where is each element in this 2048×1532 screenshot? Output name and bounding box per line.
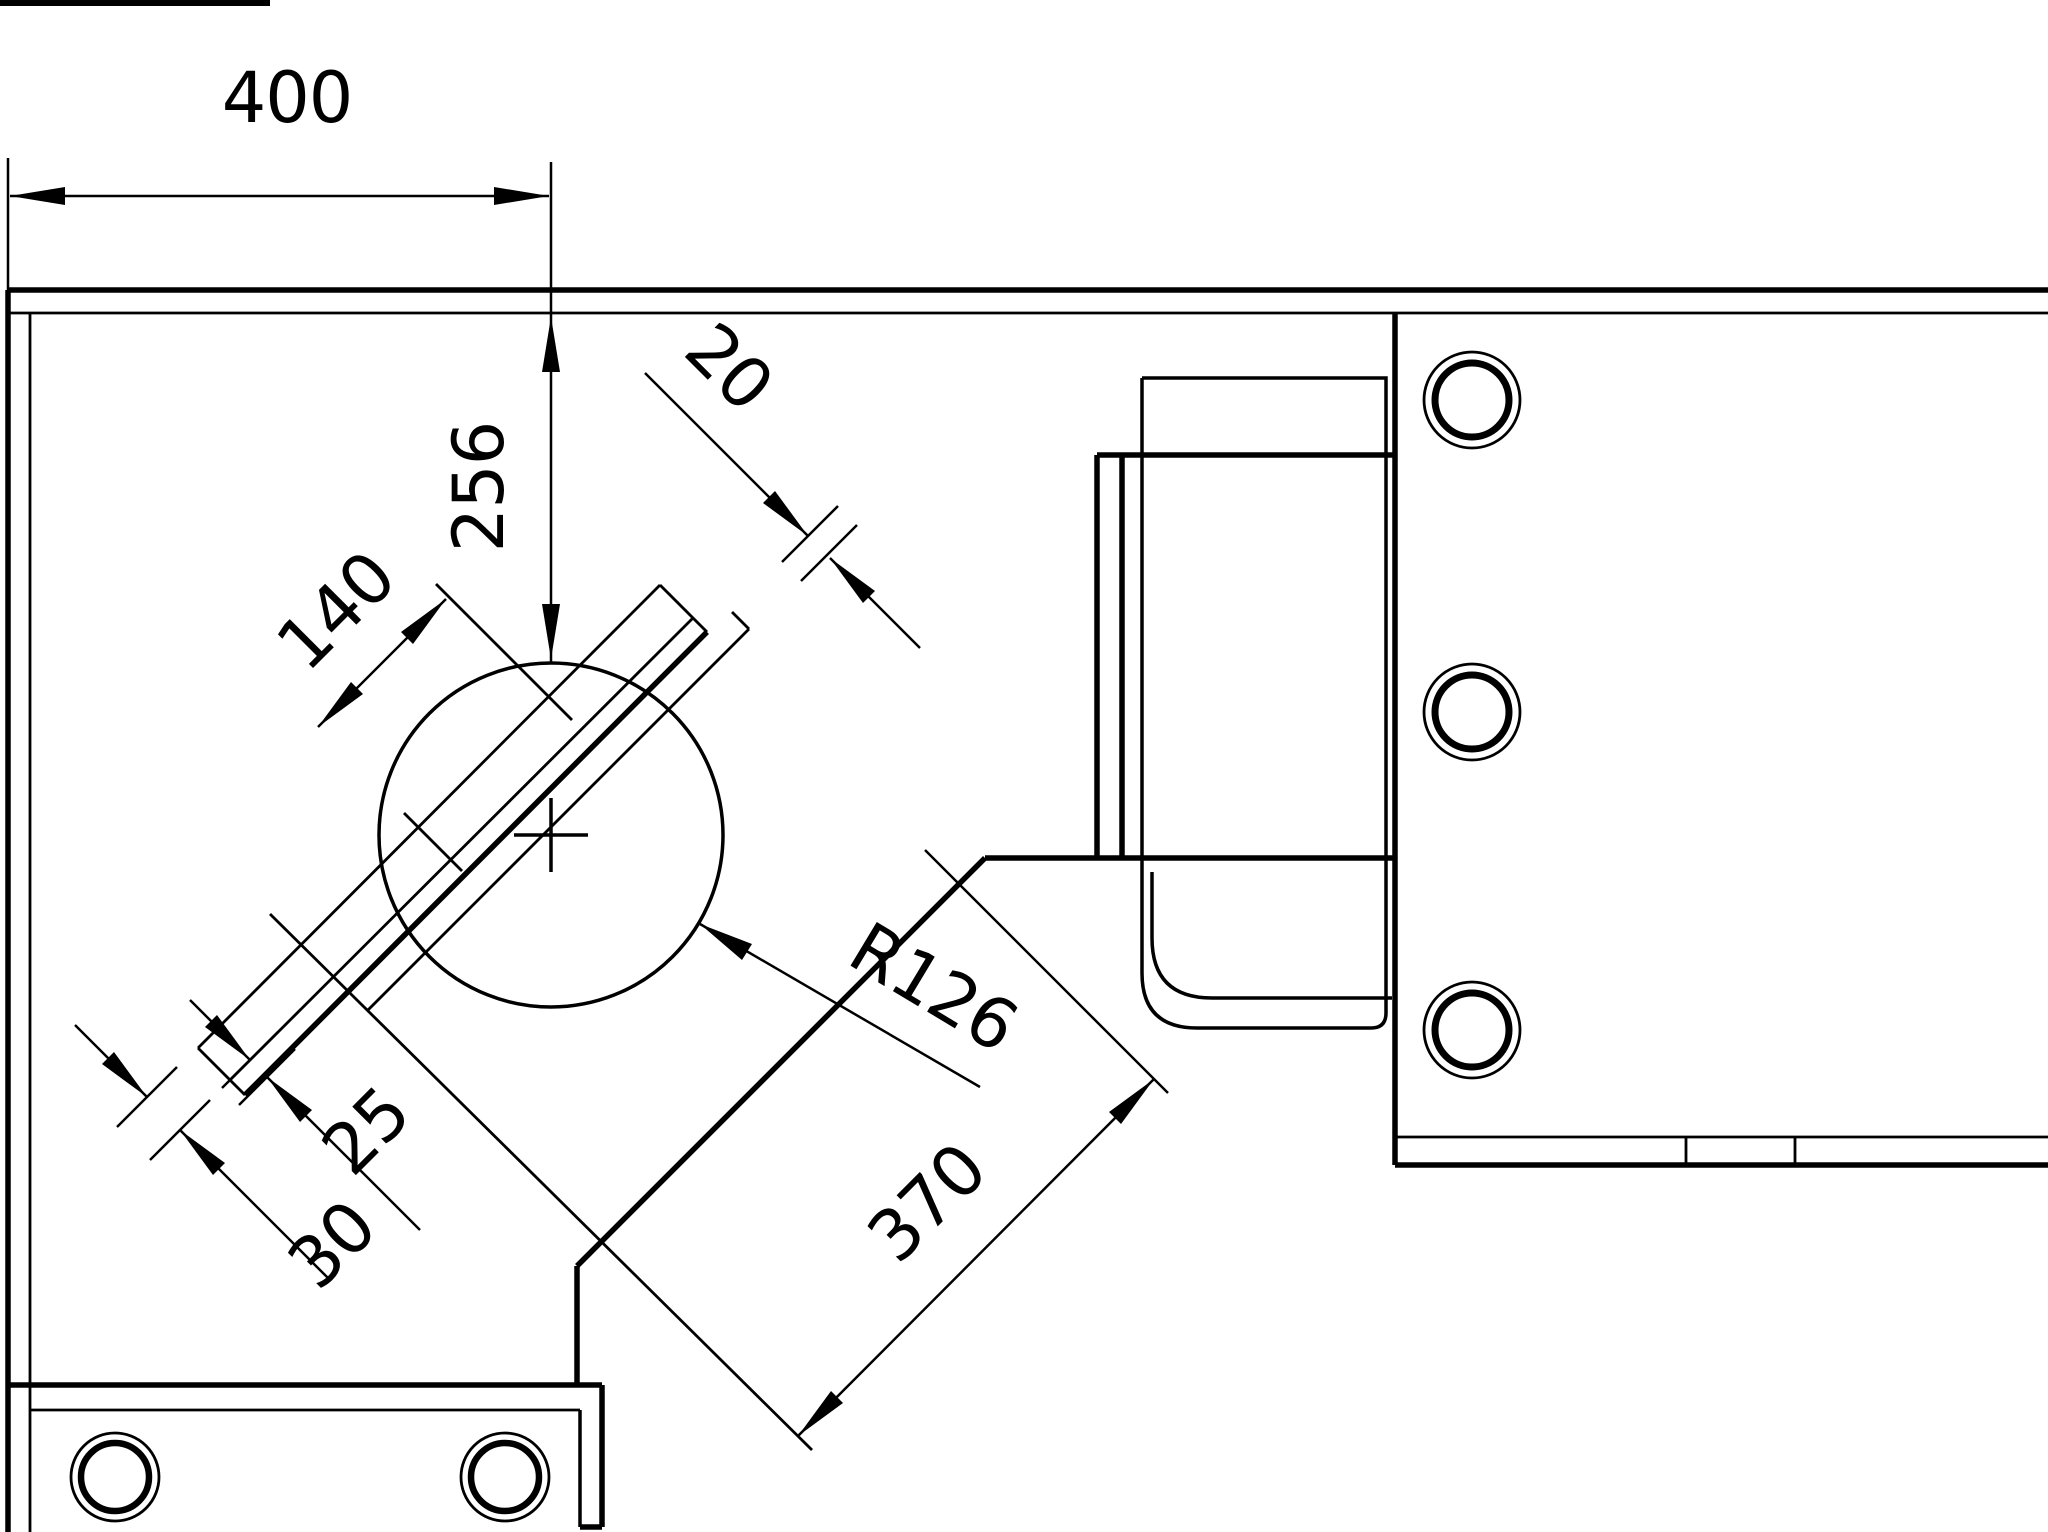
flange-hole-top <box>1424 352 1520 448</box>
arrowhead <box>10 187 65 205</box>
diagonal-bar <box>198 584 812 1450</box>
arrowhead <box>267 1077 312 1122</box>
dim-370: 370 <box>798 850 1168 1436</box>
dim-label-20: 20 <box>669 307 789 427</box>
dim-label-25: 25 <box>306 1071 426 1191</box>
flange-hole-middle <box>1424 664 1520 760</box>
bolt-holes <box>71 352 1520 1521</box>
arrowhead <box>318 682 363 727</box>
drawing-canvas: 400 256 140 20 25 3 <box>0 0 2048 1532</box>
bar-end-cap-d <box>732 612 749 629</box>
dim-r126: R126 <box>700 906 1031 1087</box>
cover-plate-inner-line <box>1152 872 1392 998</box>
arrowhead <box>542 604 560 659</box>
part-outline <box>0 0 2048 1532</box>
dim-label-256: 256 <box>438 422 520 553</box>
dim-label-30: 30 <box>272 1185 392 1305</box>
arrowhead <box>180 1130 225 1175</box>
arrowhead <box>1109 1079 1154 1124</box>
bar-edge-c-thick <box>245 632 707 1095</box>
dim-400: 400 <box>8 57 551 663</box>
arrowhead <box>542 317 560 372</box>
arrowhead <box>700 924 752 960</box>
dim-140: 140 <box>261 536 446 727</box>
dim-256: 256 <box>438 317 560 659</box>
arrowhead <box>830 558 875 603</box>
arrowhead <box>401 599 446 644</box>
dim-label-140: 140 <box>261 536 411 686</box>
arrowhead <box>763 491 808 536</box>
foot-hole-left <box>71 1433 159 1521</box>
arrowhead <box>494 187 549 205</box>
large-circle-group <box>379 663 723 1007</box>
bar-edge-a <box>198 585 660 1048</box>
bar-end-cap-upper <box>660 585 707 632</box>
cad-drawing: 400 256 140 20 25 3 <box>0 0 2048 1532</box>
dim-20: 20 <box>645 307 920 648</box>
arrowhead <box>102 1052 147 1097</box>
flange-hole-bottom <box>1424 982 1520 1078</box>
cover-plate-outline <box>1142 378 1386 1028</box>
top-left-edge-bar <box>0 0 270 6</box>
dim-370-line <box>798 1079 1154 1436</box>
arrowhead <box>798 1391 843 1436</box>
foot-hole-right <box>461 1433 549 1521</box>
dim-label-r126: R126 <box>836 906 1031 1068</box>
dim-label-400: 400 <box>222 57 353 139</box>
bar-cross-line-long <box>270 914 812 1450</box>
arrowhead <box>205 1015 250 1060</box>
dim-label-370: 370 <box>852 1128 1002 1278</box>
slot-end-lower <box>404 813 462 871</box>
